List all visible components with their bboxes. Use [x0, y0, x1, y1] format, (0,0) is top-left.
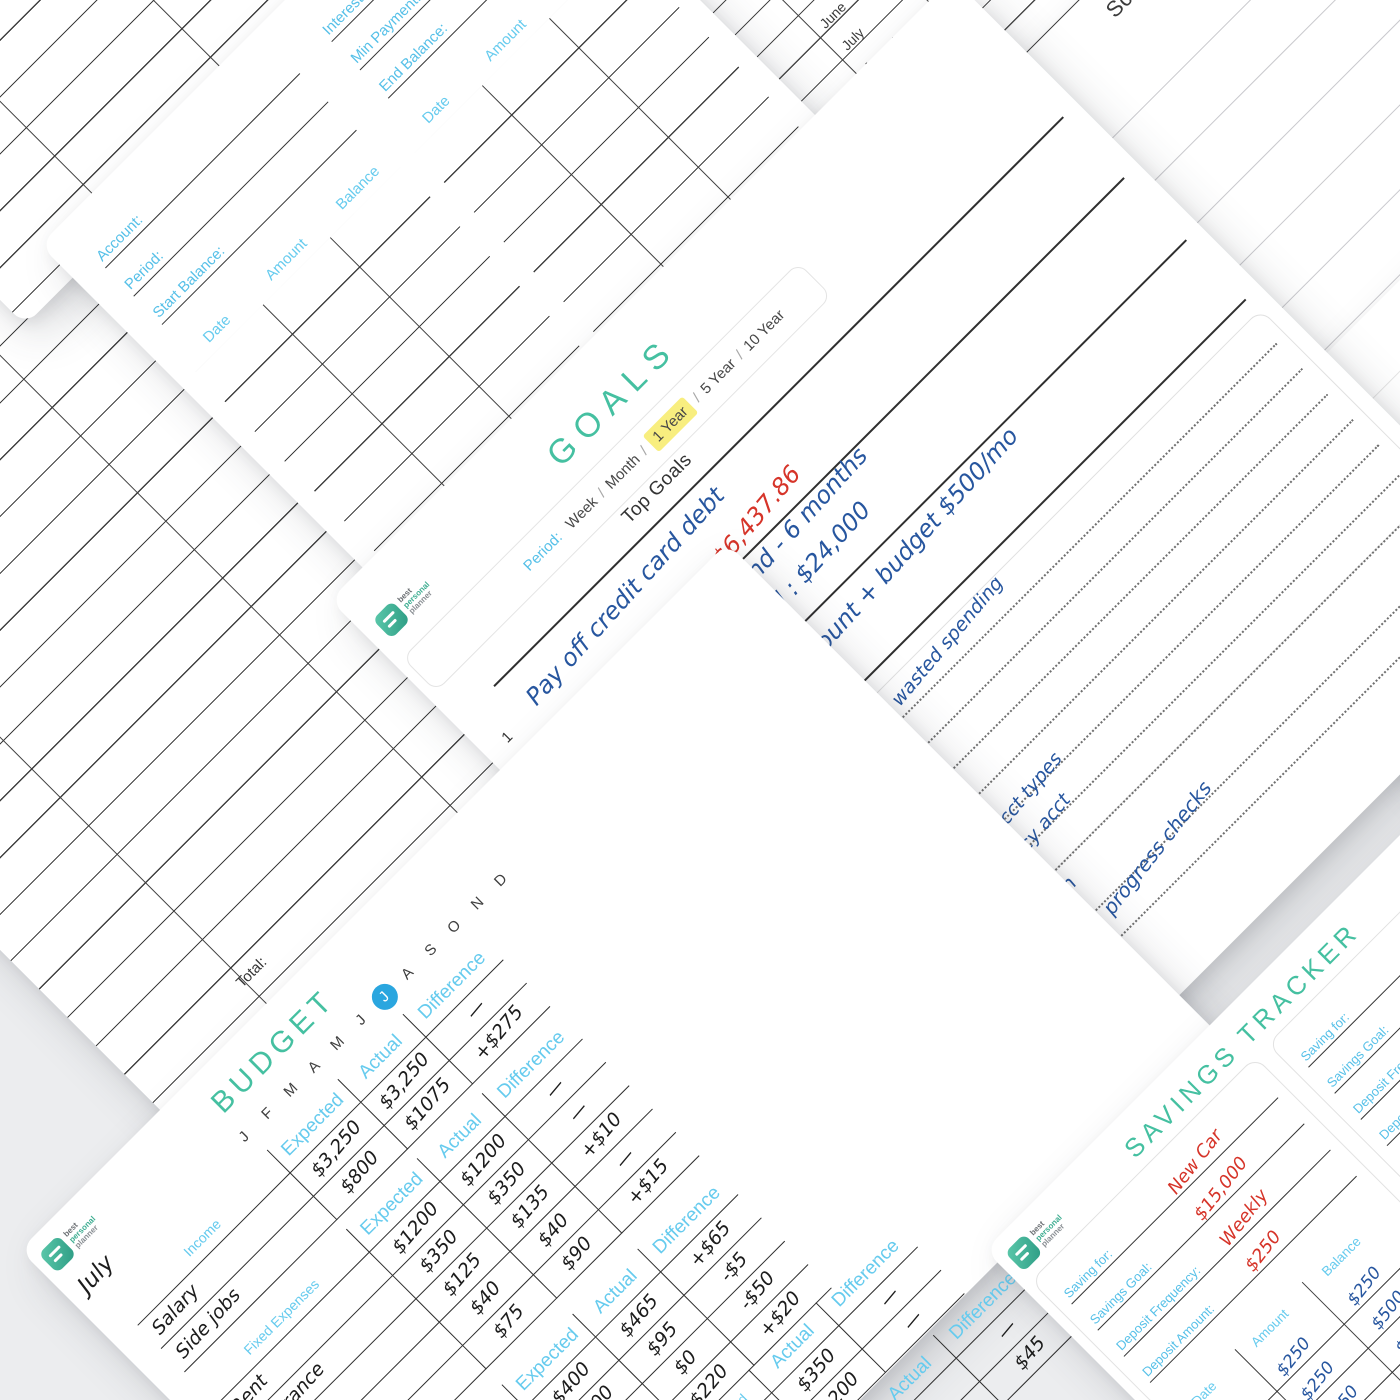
- period-option-10-year[interactable]: 10 Year: [740, 307, 788, 355]
- date-column-header: Date: [1189, 1378, 1220, 1400]
- period-label: Period:: [520, 529, 566, 575]
- budget-month-written: July: [72, 1250, 120, 1298]
- period-option-month[interactable]: Month: [602, 451, 644, 493]
- brand-logo: best personal planner: [372, 574, 437, 639]
- goal-number: 1: [498, 728, 516, 746]
- deposit-amount-value: $250: [1240, 1228, 1287, 1275]
- table-column-line: [0, 513, 286, 1023]
- planner-flatlay-scene: Total: June July August September Octobe…: [0, 0, 1400, 1400]
- logo-wordmark: best personal planner: [62, 1209, 103, 1250]
- logo-wordmark: best personal planner: [1028, 1208, 1069, 1249]
- logo-wordmark: best personal planner: [396, 575, 437, 616]
- period-option-5-year[interactable]: 5 Year: [697, 355, 739, 397]
- period-option-week[interactable]: Week: [562, 494, 601, 533]
